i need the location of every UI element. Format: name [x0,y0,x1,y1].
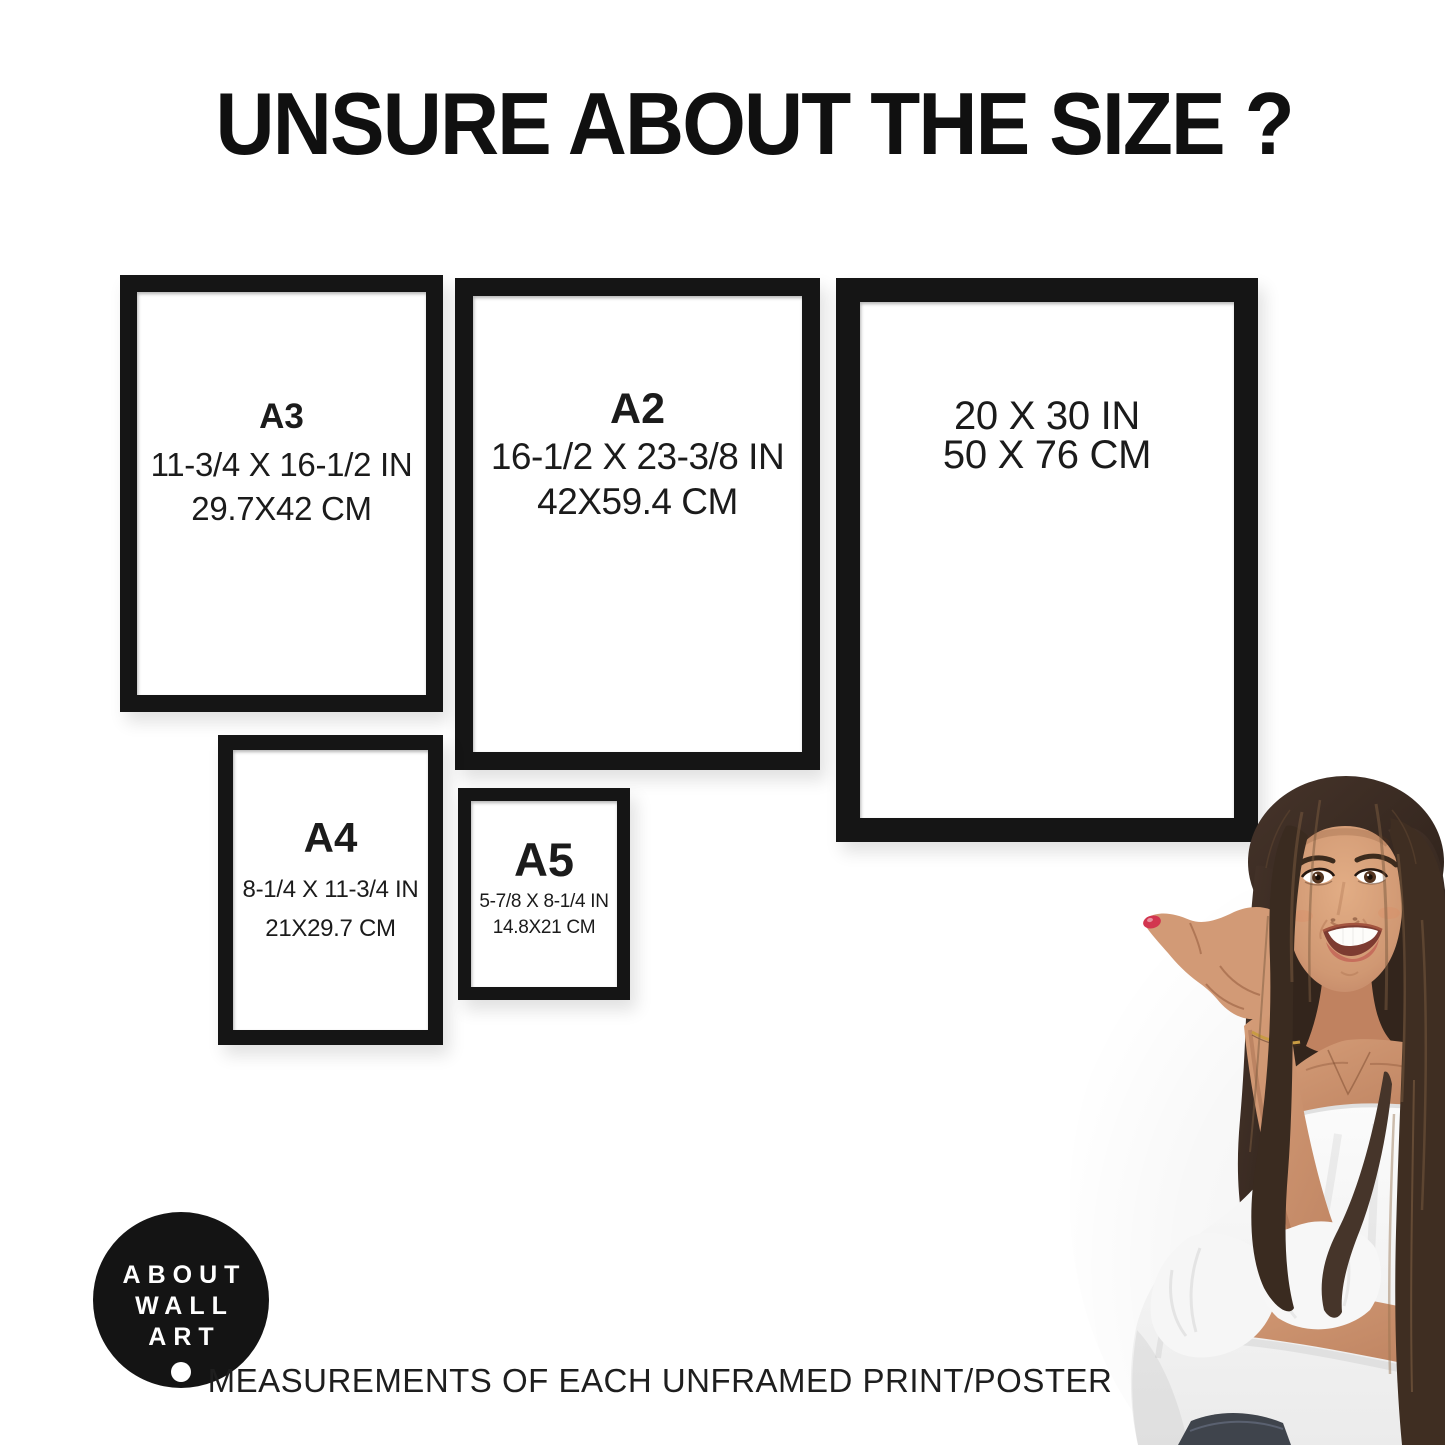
frame-a4-label: A4 [233,816,428,860]
frame-a5-size-inches: 5-7/8 X 8-1/4 IN [471,889,617,915]
frame-a3-size-cm: 29.7X42 CM [137,487,426,531]
frame-a2-size-inches: 16-1/2 X 23-3/8 IN [473,434,802,479]
right-eye [1355,869,1387,884]
frame-a3-label: A3 [137,397,426,437]
frame-20x30-text: 20 X 30 IN 50 X 76 CM [860,397,1234,475]
frame-20x30-size-inches: 20 X 30 IN [860,397,1234,436]
frame-a5-label: A5 [471,835,617,885]
frame-a5-size-cm: 14.8X21 CM [471,915,617,941]
brand-logo-line-1: ABOUT [93,1260,269,1291]
frame-a2-size-cm: 42X59.4 CM [473,479,802,524]
frame-20x30-size-cm: 50 X 76 CM [860,436,1234,475]
frame-a3-text: A3 11-3/4 X 16-1/2 IN 29.7X42 CM [137,397,426,531]
frame-a4-size-inches: 8-1/4 X 11-3/4 IN [233,870,428,909]
brand-logo-line-3: ART [93,1322,269,1353]
frame-a4-text: A4 8-1/4 X 11-3/4 IN 21X29.7 CM [233,816,428,948]
frame-a2-label: A2 [473,386,802,432]
brand-logo-line-2: WALL [93,1291,269,1322]
frame-a3: A3 11-3/4 X 16-1/2 IN 29.7X42 CM [120,275,443,712]
page-title: UNSURE ABOUT THE SIZE ? [51,80,1395,168]
left-eye [1302,869,1334,885]
frame-20x30: 20 X 30 IN 50 X 76 CM [836,278,1258,842]
size-guide-page: UNSURE ABOUT THE SIZE ? A3 11-3/4 X 16-1… [0,0,1445,1445]
frame-a4: A4 8-1/4 X 11-3/4 IN 21X29.7 CM [218,735,443,1045]
frame-a4-size-cm: 21X29.7 CM [233,909,428,948]
woman-pointing-illustration [1040,770,1445,1445]
frame-a5-text: A5 5-7/8 X 8-1/4 IN 14.8X21 CM [471,835,617,941]
frame-a3-size-inches: 11-3/4 X 16-1/2 IN [137,443,426,487]
frame-a2-text: A2 16-1/2 X 23-3/8 IN 42X59.4 CM [473,386,802,524]
frame-a2: A2 16-1/2 X 23-3/8 IN 42X59.4 CM [455,278,820,770]
frame-a5: A5 5-7/8 X 8-1/4 IN 14.8X21 CM [458,788,630,1000]
right-blush [1378,907,1400,919]
